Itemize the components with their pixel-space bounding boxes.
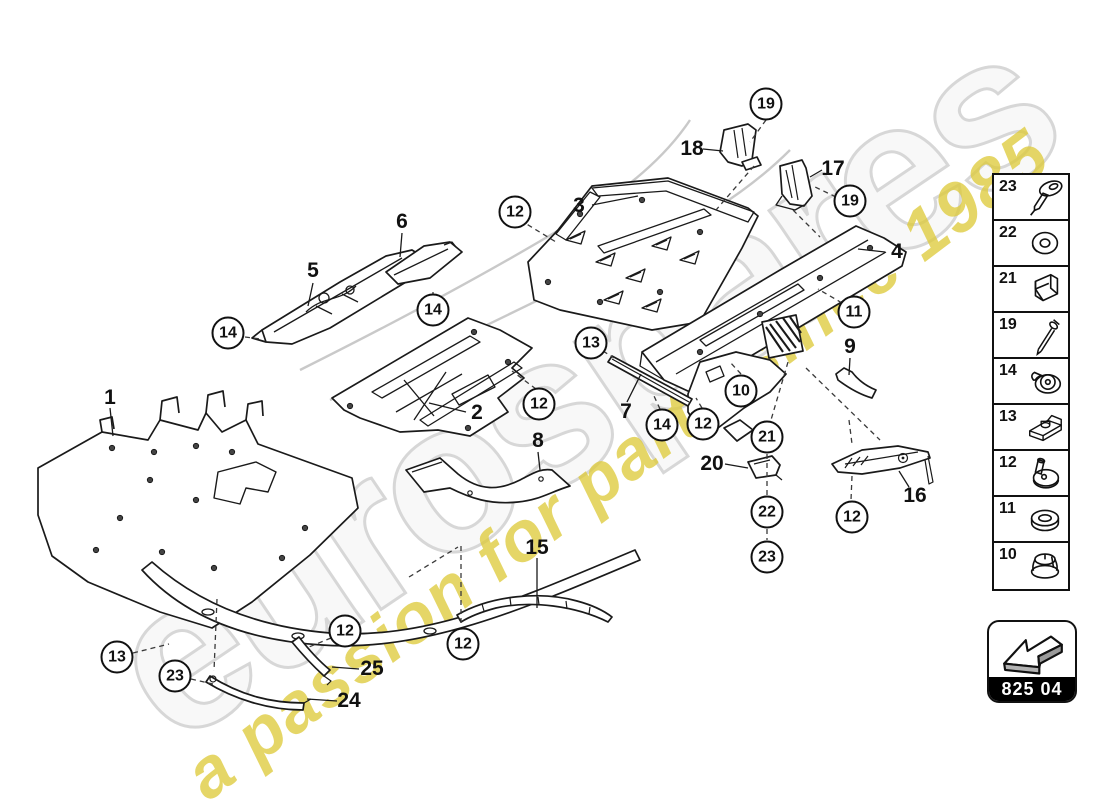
metal-clip-icon <box>1022 269 1068 311</box>
legend-item-11[interactable]: 11 <box>994 497 1068 543</box>
legend-item-number: 19 <box>999 316 1017 334</box>
callout-12[interactable]: 12 <box>329 615 362 648</box>
part-label-9: 9 <box>844 335 856 359</box>
legend-item-number: 22 <box>999 224 1017 242</box>
legend-item-number: 13 <box>999 408 1017 426</box>
callout-19[interactable]: 19 <box>750 88 783 121</box>
direction-arrow-icon <box>992 624 1074 678</box>
callout-12[interactable]: 12 <box>523 388 556 421</box>
callout-12[interactable]: 12 <box>836 501 869 534</box>
callout-13[interactable]: 13 <box>575 327 608 360</box>
hardware-legend: 232221191413121110 <box>992 173 1070 591</box>
part-label-24: 24 <box>337 689 360 713</box>
washer-icon <box>1022 223 1068 265</box>
callout-14[interactable]: 14 <box>417 294 450 327</box>
part-label-20: 20 <box>700 452 723 476</box>
callout-23[interactable]: 23 <box>751 541 784 574</box>
part-label-6: 6 <box>396 210 408 234</box>
legend-item-number: 11 <box>999 500 1016 518</box>
part-code: 825 04 <box>989 677 1075 701</box>
part-label-17: 17 <box>821 157 844 181</box>
legend-item-14[interactable]: 14 <box>994 359 1068 405</box>
legend-item-number: 14 <box>999 362 1017 380</box>
part-label-3: 3 <box>573 194 585 218</box>
part-label-15: 15 <box>525 536 548 560</box>
legend-item-12[interactable]: 12 <box>994 451 1068 497</box>
callout-10[interactable]: 10 <box>725 375 758 408</box>
flange-rivet-icon <box>1022 453 1068 495</box>
callout-12[interactable]: 12 <box>499 196 532 229</box>
part-label-5: 5 <box>307 259 319 283</box>
part-label-4: 4 <box>891 240 903 264</box>
legend-item-number: 23 <box>999 178 1017 196</box>
part-label-25: 25 <box>360 657 383 681</box>
part-label-1: 1 <box>104 386 116 410</box>
part-label-2: 2 <box>471 401 483 425</box>
legend-item-22[interactable]: 22 <box>994 221 1068 267</box>
clamp-plate-icon <box>1022 407 1068 449</box>
legend-item-number: 21 <box>999 270 1017 288</box>
legend-item-23[interactable]: 23 <box>994 175 1068 221</box>
panel-shapes <box>38 124 933 710</box>
callout-14[interactable]: 14 <box>212 317 245 350</box>
rivet-pin-icon <box>1022 315 1068 357</box>
callout-23[interactable]: 23 <box>159 660 192 693</box>
legend-item-10[interactable]: 10 <box>994 543 1068 589</box>
diagram-section-box: 825 04 <box>987 620 1077 703</box>
dome-screw-icon <box>1022 361 1068 403</box>
callout-21[interactable]: 21 <box>751 421 784 454</box>
parts-diagram-page: eurospares a passion for parts since 198… <box>0 0 1100 800</box>
cap-plug-icon <box>1022 545 1068 587</box>
legend-item-13[interactable]: 13 <box>994 405 1068 451</box>
legend-item-number: 12 <box>999 454 1017 472</box>
callout-14[interactable]: 14 <box>646 409 679 442</box>
callout-13[interactable]: 13 <box>101 641 134 674</box>
callout-11[interactable]: 11 <box>838 296 871 329</box>
grommet-ring-icon <box>1022 499 1068 541</box>
part-label-18: 18 <box>680 137 703 161</box>
part-label-7: 7 <box>620 400 632 424</box>
callout-12[interactable]: 12 <box>447 628 480 661</box>
part-label-8: 8 <box>532 429 544 453</box>
legend-item-21[interactable]: 21 <box>994 267 1068 313</box>
legend-item-19[interactable]: 19 <box>994 313 1068 359</box>
callout-19[interactable]: 19 <box>834 185 867 218</box>
callout-22[interactable]: 22 <box>751 496 784 529</box>
callout-12[interactable]: 12 <box>687 408 720 441</box>
legend-item-number: 10 <box>999 546 1017 564</box>
part-label-16: 16 <box>903 484 926 508</box>
push-rivet-icon <box>1022 177 1068 219</box>
